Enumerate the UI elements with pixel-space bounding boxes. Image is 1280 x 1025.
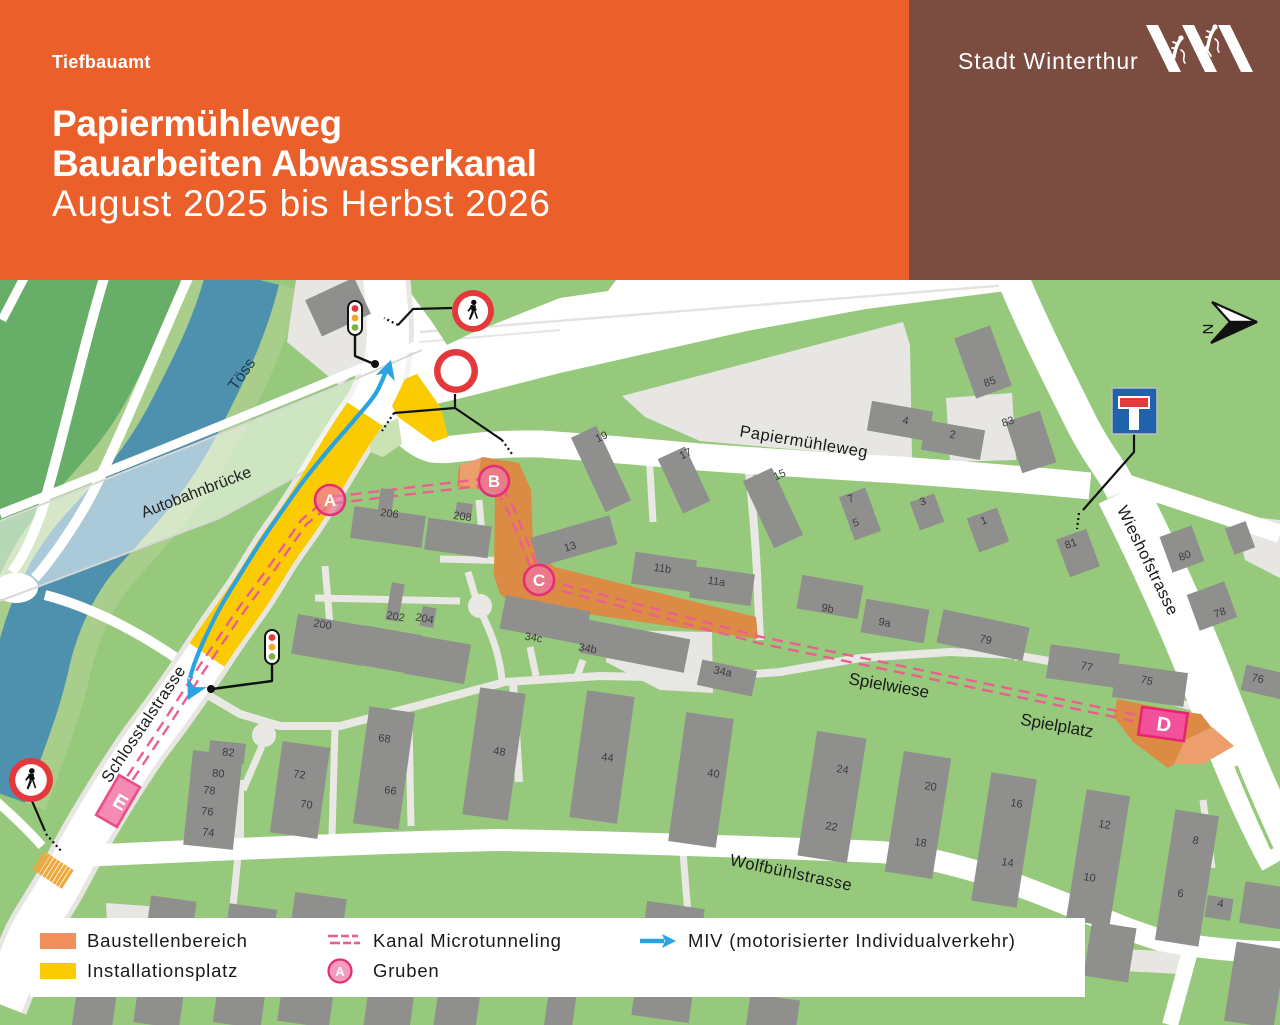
svg-text:Installationsplatz: Installationsplatz — [87, 960, 238, 981]
svg-text:Baustellenbereich: Baustellenbereich — [87, 930, 248, 951]
svg-text:40: 40 — [707, 767, 721, 781]
svg-text:22: 22 — [824, 820, 838, 834]
svg-text:80: 80 — [212, 767, 225, 780]
svg-text:66: 66 — [384, 784, 398, 798]
svg-text:Gruben: Gruben — [373, 960, 440, 981]
svg-text:D: D — [1155, 713, 1172, 737]
svg-text:208: 208 — [452, 510, 472, 524]
svg-text:MIV (motorisierter Individualv: MIV (motorisierter Individualverkehr) — [688, 930, 1016, 951]
svg-text:B: B — [488, 472, 500, 491]
svg-text:74: 74 — [202, 826, 215, 839]
svg-text:18: 18 — [913, 836, 927, 850]
svg-text:82: 82 — [222, 746, 235, 759]
svg-text:76: 76 — [201, 805, 214, 818]
svg-text:16: 16 — [1009, 797, 1023, 811]
svg-text:C: C — [533, 571, 545, 590]
svg-text:11b: 11b — [653, 562, 672, 576]
svg-text:9b: 9b — [820, 602, 834, 616]
svg-text:Kanal Microtunneling: Kanal Microtunneling — [373, 930, 562, 951]
svg-text:A: A — [324, 491, 336, 510]
svg-text:A: A — [335, 964, 345, 979]
svg-text:79: 79 — [978, 633, 992, 647]
svg-text:12: 12 — [1097, 818, 1111, 832]
svg-text:48: 48 — [493, 745, 507, 759]
svg-text:14: 14 — [1000, 856, 1014, 870]
svg-text:N: N — [1199, 324, 1216, 335]
svg-text:68: 68 — [378, 732, 392, 746]
svg-text:206: 206 — [379, 507, 399, 521]
svg-text:44: 44 — [601, 751, 615, 765]
svg-text:10: 10 — [1082, 871, 1096, 885]
svg-text:20: 20 — [923, 780, 937, 794]
svg-text:78: 78 — [203, 784, 216, 797]
svg-text:72: 72 — [293, 768, 307, 782]
svg-text:24: 24 — [835, 763, 849, 777]
svg-text:11a: 11a — [707, 575, 727, 589]
svg-text:70: 70 — [300, 798, 314, 812]
